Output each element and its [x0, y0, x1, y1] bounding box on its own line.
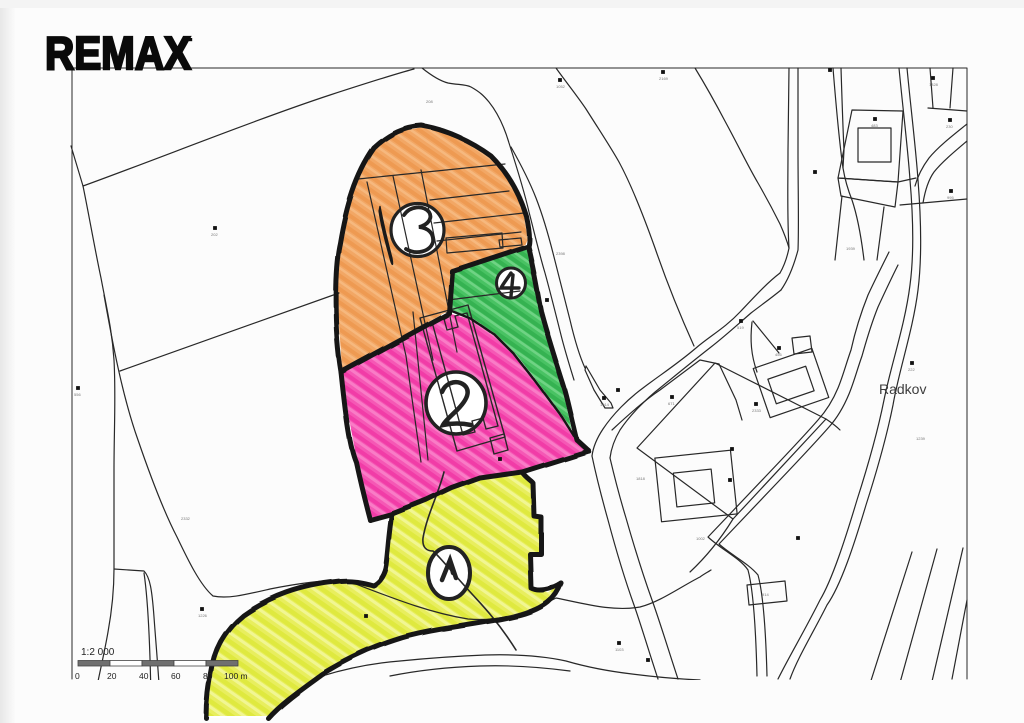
svg-text:483: 483 [871, 123, 878, 128]
svg-text:222: 222 [908, 367, 915, 372]
svg-text:556: 556 [74, 392, 81, 397]
svg-text:1939: 1939 [846, 246, 856, 251]
svg-text:208: 208 [426, 99, 433, 104]
svg-text:1828: 1828 [929, 82, 939, 87]
svg-text:995: 995 [947, 195, 954, 200]
svg-text:202: 202 [211, 232, 218, 237]
svg-text:1226: 1226 [198, 613, 208, 618]
svg-text:60: 60 [171, 671, 181, 681]
svg-text:2169: 2169 [659, 76, 669, 81]
svg-text:80: 80 [203, 671, 213, 681]
svg-text:1103: 1103 [615, 647, 624, 652]
svg-text:2332: 2332 [181, 516, 191, 521]
svg-text:2398: 2398 [556, 251, 566, 256]
svg-text:1239: 1239 [916, 436, 926, 441]
svg-text:519: 519 [737, 325, 744, 330]
svg-text:1:2 000: 1:2 000 [81, 647, 115, 658]
svg-text:1014: 1014 [600, 402, 610, 407]
svg-text:20: 20 [107, 671, 117, 681]
svg-text:REMAX: REMAX [45, 27, 191, 79]
svg-text:1052: 1052 [556, 84, 566, 89]
svg-text:671: 671 [668, 401, 675, 406]
svg-text:456: 456 [775, 352, 782, 357]
svg-text:0: 0 [75, 671, 80, 681]
svg-text:1002: 1002 [696, 536, 706, 541]
svg-text:40: 40 [139, 671, 149, 681]
svg-text:1818: 1818 [636, 476, 646, 481]
svg-text:2333: 2333 [752, 408, 762, 413]
svg-text:Radkov: Radkov [879, 381, 926, 397]
svg-text:100 m: 100 m [224, 671, 248, 681]
svg-text:230: 230 [946, 124, 953, 129]
svg-text:914: 914 [762, 592, 769, 597]
